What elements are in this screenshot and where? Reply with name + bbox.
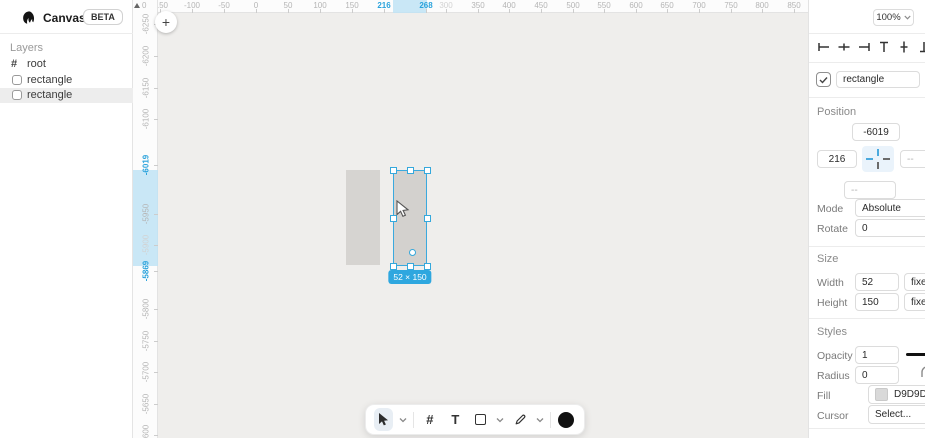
radius-input[interactable]: 0 [855,366,899,384]
ruler-tick-mark [256,9,257,13]
ruler-tick-label: -5900 [142,235,151,255]
ruler-tick-mark [154,404,158,405]
ruler-tick-mark [154,165,158,166]
resize-handle[interactable] [390,167,397,174]
shape-tool-chevron-icon[interactable] [496,417,504,423]
zoom-level-button[interactable]: 100% [873,9,914,26]
vertical-ruler: -6250-6200-6150-6100-6019-5950-5900-5869… [133,0,158,438]
ruler-tick-mark [794,9,795,13]
rectangle-glyph-icon [12,90,22,100]
canvas-viewport[interactable]: -150-100-5005010015021626830035040045050… [133,0,808,438]
ruler-tick-mark [154,214,158,215]
ruler-tick-label: -5600 [142,425,151,438]
canvas-rectangle[interactable] [346,170,380,265]
size-section-label: Size [817,253,838,265]
cursor-value: Select... [875,409,911,420]
rectangle-tool-icon [475,414,486,425]
canvas-logo-icon [21,10,36,25]
ruler-tick-mark [762,9,763,13]
text-tool-button[interactable]: T [446,408,465,431]
ruler-tick-mark [699,9,700,13]
layers-section-label: Layers [10,42,43,54]
grid-tool-icon: # [426,412,433,427]
cursor-select[interactable]: Select... [868,405,925,424]
add-button[interactable]: + [155,11,177,33]
ruler-corner-zero: 0 [142,1,146,10]
radius-label: Radius [817,370,850,382]
layer-label: root [27,58,46,70]
ruler-tick-mark [352,9,353,13]
ruler-tick-label: -6250 [142,14,151,34]
resize-handle[interactable] [424,215,431,222]
panel-divider [809,318,925,319]
ruler-tick-mark [667,9,668,13]
ruler-tick-mark [154,372,158,373]
fill-label: Fill [817,390,830,402]
size-badge: 52 × 150 [388,270,431,284]
height-input[interactable]: 150 [855,293,899,311]
mouse-cursor-icon [396,200,410,219]
grid-tool-button[interactable]: # [420,408,439,431]
beta-badge: BETA [83,9,123,25]
mode-label: Mode [817,203,843,215]
width-unit-select[interactable]: fixed [904,273,925,291]
app-title: Canvas [43,11,86,25]
resize-handle[interactable] [407,263,414,270]
align-right-icon[interactable] [857,40,871,54]
ruler-tick-mark [154,309,158,310]
position-top-value: -6019 [863,127,889,138]
sidebar-header: Canvas BETA [0,0,133,34]
rotate-label: Rotate [817,223,848,235]
ruler-tick-mark [154,271,158,272]
resize-handle[interactable] [424,167,431,174]
align-left-icon[interactable] [817,40,831,54]
ruler-tick-label: -5950 [142,204,151,224]
panel-divider [809,97,925,98]
pen-tool-chevron-icon[interactable] [536,417,544,423]
ruler-tick-label: -5800 [142,299,151,319]
anchor-top-active [877,149,879,156]
rectangle-glyph-icon [12,75,22,85]
fill-value: D9D9D9 [894,389,925,400]
fill-input[interactable]: D9D9D9 [868,385,925,404]
alignment-toolbar [817,38,925,55]
position-right-input[interactable]: -- [900,150,925,168]
check-icon [819,76,828,84]
anchor-bottom-inactive [877,162,879,169]
ruler-tick-mark [154,119,158,120]
name-value: rectangle [843,74,884,85]
ruler-tick-mark [509,9,510,13]
radius-value: 0 [862,370,868,381]
position-bottom-value: -- [851,185,858,196]
ruler-tick-label: -5869 [142,261,151,281]
ruler-tick-mark [426,9,427,13]
cursor-label: Cursor [817,410,849,422]
height-label: Height [817,297,847,309]
ruler-tick-mark [288,9,289,13]
rotate-value: 0 [862,223,868,234]
height-unit-select[interactable]: fixed [904,293,925,311]
panel-divider [809,246,925,247]
panel-divider [809,33,925,34]
ruler-tick-mark [154,435,158,436]
layer-label: rectangle [27,89,72,101]
ruler-tick-mark [731,9,732,13]
ruler-tick-mark [604,9,605,13]
ruler-tick-label: -6019 [142,155,151,175]
ruler-tick-mark [154,245,158,246]
mode-select[interactable]: Absolute [855,199,925,217]
ruler-tick-mark [541,9,542,13]
ruler-tick-mark [478,9,479,13]
resize-handle[interactable] [390,263,397,270]
position-anchor-widget[interactable] [862,146,894,172]
panel-divider [809,62,925,63]
hash-icon: # [11,58,17,70]
toolbar-divider [550,412,551,428]
properties-panel: 100% rectangle Position -6019 216 -- -- [808,0,925,438]
layers-sidebar: Canvas BETA Layers # root rectangle rect… [0,0,133,438]
layer-item-root[interactable]: # root [0,57,133,72]
ruler-tick-mark [154,88,158,89]
align-bottom-icon[interactable] [917,40,925,54]
mode-value: Absolute [862,203,901,214]
rectangle-tool-button[interactable] [471,408,490,431]
zoom-level-value: 100% [876,12,900,23]
black-color-swatch-icon [558,412,574,428]
ruler-tick-mark [320,9,321,13]
name-input[interactable]: rectangle [836,71,920,88]
opacity-label: Opacity [817,350,853,362]
ruler-tick-mark [224,9,225,13]
corner-radius-handle[interactable] [409,249,416,256]
ruler-tick-mark [154,56,158,57]
align-center-horizontal-icon[interactable] [837,40,851,54]
width-value: 52 [862,277,873,288]
position-bottom-input[interactable]: -- [844,181,896,199]
height-value: 150 [862,297,879,308]
resize-handle[interactable] [424,263,431,270]
width-input[interactable]: 52 [855,273,899,291]
layer-label: rectangle [27,74,72,86]
ruler-tick-label: -5700 [142,362,151,382]
chevron-down-icon [904,15,911,20]
align-middle-vertical-icon[interactable] [897,40,911,54]
position-left-input[interactable]: 216 [817,150,857,168]
horizontal-ruler: -150-100-5005010015021626830035040045050… [133,0,808,13]
toolbar-divider [413,412,414,428]
panel-divider [809,428,925,429]
ruler-tick-mark [446,9,447,13]
ruler-tick-label: -6200 [142,46,151,66]
resize-handle[interactable] [407,167,414,174]
text-tool-icon: T [451,412,459,427]
corner-radius-icon [921,366,925,378]
position-right-value: -- [907,154,914,165]
select-tool-chevron-icon[interactable] [399,417,407,423]
opacity-value: 1 [862,350,868,361]
position-left-value: 216 [829,154,846,165]
visibility-checkbox[interactable] [816,72,831,87]
width-label: Width [817,277,844,289]
fill-color-swatch [875,388,888,401]
align-top-icon[interactable] [877,40,891,54]
height-unit-value: fixed [911,297,925,308]
ruler-tick-label: -6100 [142,109,151,129]
ruler-tick-mark [154,341,158,342]
layer-item-rectangle-2[interactable]: rectangle [0,88,133,103]
styles-section-label: Styles [817,326,847,338]
opacity-slider[interactable] [906,353,925,356]
ruler-tick-label: -5650 [142,394,151,414]
ruler-tick-mark [384,9,385,13]
select-tool-button[interactable] [374,408,393,431]
rotate-input[interactable]: 0 [855,219,925,237]
color-swatch-button[interactable] [557,408,576,431]
anchor-left-active [866,158,873,160]
anchor-right-inactive [883,158,890,160]
position-section-label: Position [817,106,856,118]
position-top-input[interactable]: -6019 [852,123,900,141]
ruler-tick-mark [573,9,574,13]
width-unit-value: fixed [911,277,925,288]
ruler-tick-mark [636,9,637,13]
ruler-tick-label: -6150 [142,78,151,98]
ruler-tick-label: -5750 [142,331,151,351]
tool-bar: # T [365,404,585,435]
scroll-up-arrow-icon[interactable] [134,3,140,8]
ruler-tick-mark [192,9,193,13]
layer-item-rectangle-1[interactable]: rectangle [0,73,133,88]
opacity-input[interactable]: 1 [855,346,899,364]
pen-tool-button[interactable] [510,408,529,431]
